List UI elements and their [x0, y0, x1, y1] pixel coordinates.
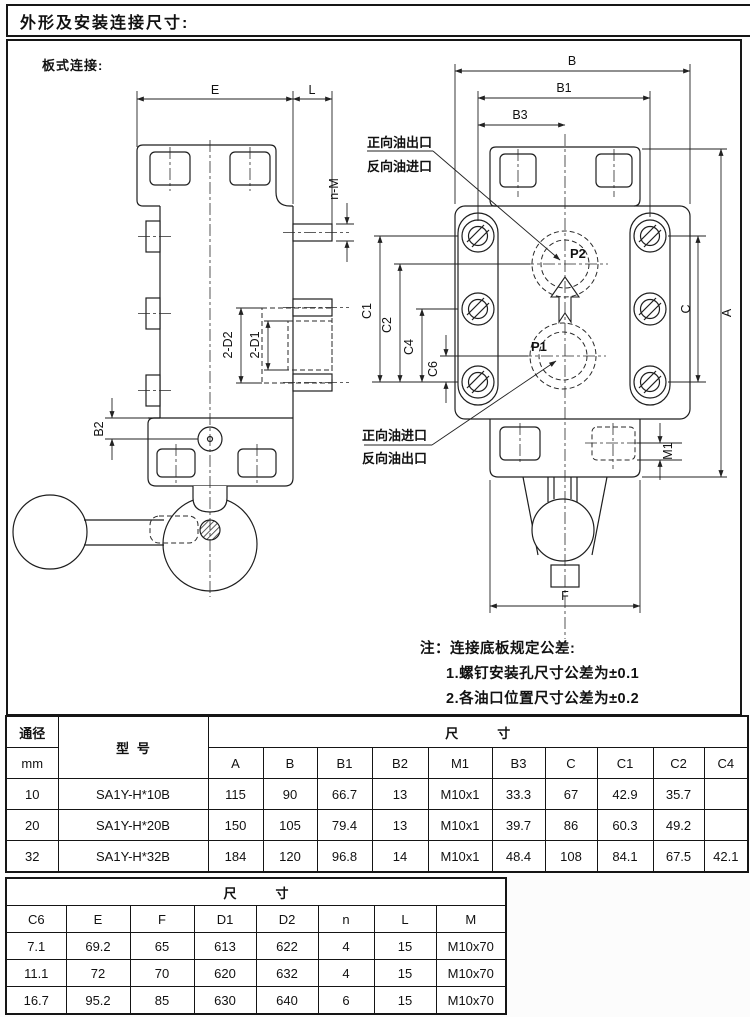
col-header-diameter: 通径 — [6, 716, 58, 748]
cell: 640 — [256, 987, 318, 1015]
cell: 622 — [256, 933, 318, 960]
cell: 620 — [194, 960, 256, 987]
cell: 150 — [208, 810, 263, 841]
page-title: 外形及安装连接尺寸: — [6, 4, 750, 37]
cell: 85 — [130, 987, 194, 1015]
cell: 632 — [256, 960, 318, 987]
cell — [704, 810, 748, 841]
cell: 13 — [372, 810, 428, 841]
dim-label-b1: B1 — [556, 81, 571, 95]
cell: 630 — [194, 987, 256, 1015]
technical-drawing: E L n-M 2-D2 2-D1 B2 B B1 B3 C1 C2 C4 C6… — [8, 41, 736, 710]
dim-label-e: E — [211, 83, 219, 97]
catalog-page: 外形及安装连接尺寸: 板式连接: — [0, 0, 750, 1017]
cell: M10x1 — [428, 779, 492, 810]
cell: 15 — [374, 987, 436, 1015]
dim-label-c2: C2 — [380, 317, 394, 333]
cell: 39.7 — [492, 810, 545, 841]
table-row: 尺寸 — [6, 878, 506, 906]
dim-label-a: A — [720, 308, 734, 317]
cell: 33.3 — [492, 779, 545, 810]
tolerance-note-title: 注：连接底板规定公差: — [420, 637, 639, 662]
col-header-d2: D2 — [256, 906, 318, 933]
cell: 96.8 — [317, 841, 372, 873]
cell: 35.7 — [653, 779, 704, 810]
dim-label-l: L — [309, 83, 316, 97]
dim-label-2-d1: 2-D1 — [248, 331, 262, 358]
col-header-d1: D1 — [194, 906, 256, 933]
col-header-a: A — [208, 748, 263, 779]
cell: M10x1 — [428, 810, 492, 841]
col-header-b3: B3 — [492, 748, 545, 779]
col-header-c4: C4 — [704, 748, 748, 779]
cell: 184 — [208, 841, 263, 873]
cell-model: SA1Y-H*10B — [58, 779, 208, 810]
cell: 90 — [263, 779, 317, 810]
cell: 108 — [545, 841, 597, 873]
dim-label-f: F — [561, 589, 569, 603]
cell: 14 — [372, 841, 428, 873]
cell: 613 — [194, 933, 256, 960]
cell: M10x1 — [428, 841, 492, 873]
table-row: 11.1 72 70 620 632 4 15 M10x70 — [6, 960, 506, 987]
col-header-e: E — [66, 906, 130, 933]
col-header-m: M — [436, 906, 506, 933]
col-header-c6: C6 — [6, 906, 66, 933]
cell-model: SA1Y-H*20B — [58, 810, 208, 841]
cell: 4 — [318, 933, 374, 960]
cell: 16.7 — [6, 987, 66, 1015]
col-header-b: B — [263, 748, 317, 779]
cell: 84.1 — [597, 841, 653, 873]
table-row: 7.1 69.2 65 613 622 4 15 M10x70 — [6, 933, 506, 960]
drawing-panel: 板式连接: — [6, 39, 742, 716]
cell: 15 — [374, 933, 436, 960]
cell: 42.9 — [597, 779, 653, 810]
size-group-header: 尺寸 — [6, 878, 506, 906]
table-row: 32 SA1Y-H*32B 184 120 96.8 14 M10x1 48.4… — [6, 841, 748, 873]
cell: 70 — [130, 960, 194, 987]
cell: 120 — [263, 841, 317, 873]
table-row: 通径 型号 尺寸 — [6, 716, 748, 748]
cell: 69.2 — [66, 933, 130, 960]
dimension-table-secondary: 尺寸 C6 E F D1 D2 n L M 7.1 69.2 65 613 62… — [5, 877, 507, 1015]
cell: 67.5 — [653, 841, 704, 873]
cell-dn: 32 — [6, 841, 58, 873]
col-header-c2: C2 — [653, 748, 704, 779]
cell: 48.4 — [492, 841, 545, 873]
table-row: C6 E F D1 D2 n L M — [6, 906, 506, 933]
cell-dn: 20 — [6, 810, 58, 841]
size-group-header: 尺寸 — [208, 716, 748, 748]
cell: 72 — [66, 960, 130, 987]
cell: M10x70 — [436, 987, 506, 1015]
cell: 105 — [263, 810, 317, 841]
port-callout-bottom-2: 反向油出口 — [362, 451, 427, 466]
cell: 115 — [208, 779, 263, 810]
port-label-p2: P2 — [570, 246, 586, 261]
dim-label-c: C — [679, 304, 693, 313]
col-header-b1: B1 — [317, 748, 372, 779]
cell: 11.1 — [6, 960, 66, 987]
cell: 65 — [130, 933, 194, 960]
col-header-m1: M1 — [428, 748, 492, 779]
cell: 49.2 — [653, 810, 704, 841]
port-callout-top-1: 正向油出口 — [367, 135, 432, 150]
left-view-outline — [13, 145, 332, 591]
cell: 4 — [318, 960, 374, 987]
tolerance-note-item-2: 2.各油口位置尺寸公差为±0.2 — [420, 687, 639, 712]
cell: 7.1 — [6, 933, 66, 960]
cell-dn: 10 — [6, 779, 58, 810]
cell-model: SA1Y-H*32B — [58, 841, 208, 873]
col-header-b2: B2 — [372, 748, 428, 779]
col-header-model: 型号 — [58, 716, 208, 779]
col-header-c1: C1 — [597, 748, 653, 779]
cell: 15 — [374, 960, 436, 987]
table-row: 20 SA1Y-H*20B 150 105 79.4 13 M10x1 39.7… — [6, 810, 748, 841]
dim-label-b: B — [568, 54, 576, 68]
port-label-p1: P1 — [531, 339, 547, 354]
col-header-f: F — [130, 906, 194, 933]
cell: 42.1 — [704, 841, 748, 873]
dim-label-2-d2: 2-D2 — [221, 331, 235, 358]
col-header-l: L — [374, 906, 436, 933]
cell: 67 — [545, 779, 597, 810]
table-row: 10 SA1Y-H*10B 115 90 66.7 13 M10x1 33.3 … — [6, 779, 748, 810]
cell: 60.3 — [597, 810, 653, 841]
cell — [704, 779, 748, 810]
dim-label-m1: M1 — [661, 442, 675, 459]
dim-label-c1: C1 — [360, 303, 374, 319]
cell: 66.7 — [317, 779, 372, 810]
port-callout-top-2: 反向油进口 — [367, 159, 432, 174]
tolerance-note: 注：连接底板规定公差: 1.螺钉安装孔尺寸公差为±0.1 2.各油口位置尺寸公差… — [420, 637, 639, 712]
dim-label-b2: B2 — [92, 421, 106, 436]
dim-label-n-m: n-M — [327, 178, 341, 200]
tolerance-note-item-1: 1.螺钉安装孔尺寸公差为±0.1 — [420, 662, 639, 687]
cell: 6 — [318, 987, 374, 1015]
col-header-n: n — [318, 906, 374, 933]
cell: M10x70 — [436, 933, 506, 960]
dimension-table-main: 通径 型号 尺寸 mm A B B1 B2 M1 B3 C C1 C2 C4 1… — [5, 715, 749, 873]
cell: 13 — [372, 779, 428, 810]
dim-label-b3: B3 — [512, 108, 527, 122]
port-callout-bottom-1: 正向油进口 — [362, 428, 427, 443]
cell: 86 — [545, 810, 597, 841]
cell: 95.2 — [66, 987, 130, 1015]
cell: M10x70 — [436, 960, 506, 987]
dim-label-c4: C4 — [402, 339, 416, 355]
col-header-unit: mm — [6, 748, 58, 779]
cell: 79.4 — [317, 810, 372, 841]
col-header-c: C — [545, 748, 597, 779]
dim-label-c6: C6 — [426, 361, 440, 377]
table-row: 16.7 95.2 85 630 640 6 15 M10x70 — [6, 987, 506, 1015]
